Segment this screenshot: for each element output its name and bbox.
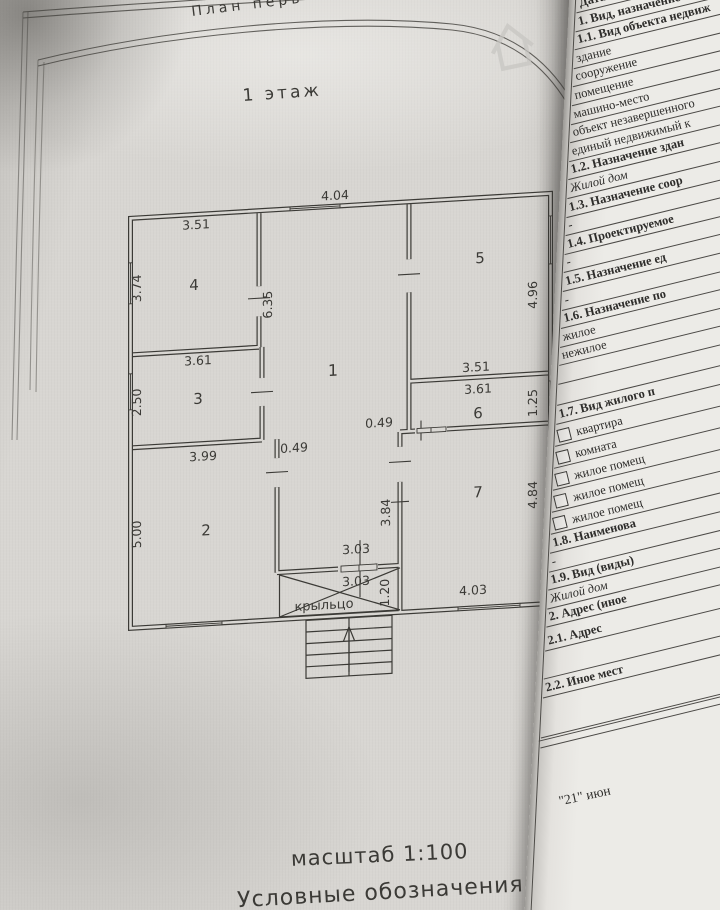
room-number-2: 2: [201, 521, 211, 540]
dim-room4-width: 3.51: [182, 216, 210, 233]
dim-room7-width: 4.03: [459, 582, 487, 599]
porch-label: крыльцо: [294, 597, 353, 616]
checkbox-icon: [555, 449, 571, 465]
house-watermark-icon: [488, 22, 536, 70]
dim-room3-width: 3.61: [184, 352, 212, 369]
dim-room2-width: 3.99: [189, 448, 217, 465]
door-ticks: [248, 274, 421, 604]
checkbox-icon: [552, 515, 568, 531]
direction-arrow-icon: [344, 627, 355, 673]
dim-room2-height: 5.00: [129, 520, 144, 549]
dim-room4-height: 3.74: [129, 274, 144, 303]
room-number-6: 6: [473, 404, 483, 423]
legend-heading: Условные обозначения:: [237, 872, 533, 910]
floor-plan: 1 2 3 4 5 6 7 4.04 3.51 3.74 6.35 3.61 2…: [129, 175, 553, 689]
dim-room6-width: 3.61: [464, 380, 492, 397]
dim-room3-height: 2.50: [129, 388, 144, 417]
stairs-icon: [306, 615, 392, 678]
scale-caption: масштаб 1:100: [290, 839, 469, 871]
floor-title: 1 этаж: [242, 81, 322, 106]
dim-room1-width: 4.04: [321, 187, 349, 204]
dim-stub-right: 0.49: [365, 414, 393, 431]
walls: [131, 193, 551, 628]
room-number-1: 1: [328, 361, 338, 381]
room-numbers: 1 2 3 4 5 6 7: [189, 249, 485, 541]
checkbox-icon: [553, 493, 569, 509]
window-icons: [129, 191, 553, 630]
sheet-title-partial: План перв: [191, 0, 305, 20]
room-number-4: 4: [189, 276, 199, 295]
dim-room5-width: 3.51: [462, 359, 490, 376]
room-number-3: 3: [193, 390, 203, 409]
form-date-line: "21" июн: [533, 738, 720, 814]
dimension-labels: 4.04 3.51 3.74 6.35 3.61 2.50 3.99 5.00 …: [129, 176, 540, 625]
room-number-7: 7: [473, 483, 483, 502]
photographed-document: План перв 1 этаж: [0, 0, 720, 910]
checkbox-icon: [554, 471, 570, 487]
room-number-5: 5: [475, 249, 485, 268]
dim-room7-left: 3.84: [378, 498, 393, 527]
dim-porch-height: 1.20: [377, 578, 392, 607]
dim-room1-height: 6.35: [260, 290, 275, 319]
dim-stub-left: 0.49: [280, 439, 308, 456]
dim-porch-width: 3.03: [342, 573, 370, 590]
window-icon-room7: [458, 603, 520, 610]
form-table: Дата составления "21" и 1. Вид, назначен…: [537, 0, 720, 828]
dim-door-width: 3.03: [342, 541, 370, 558]
checkbox-icon: [556, 427, 572, 443]
